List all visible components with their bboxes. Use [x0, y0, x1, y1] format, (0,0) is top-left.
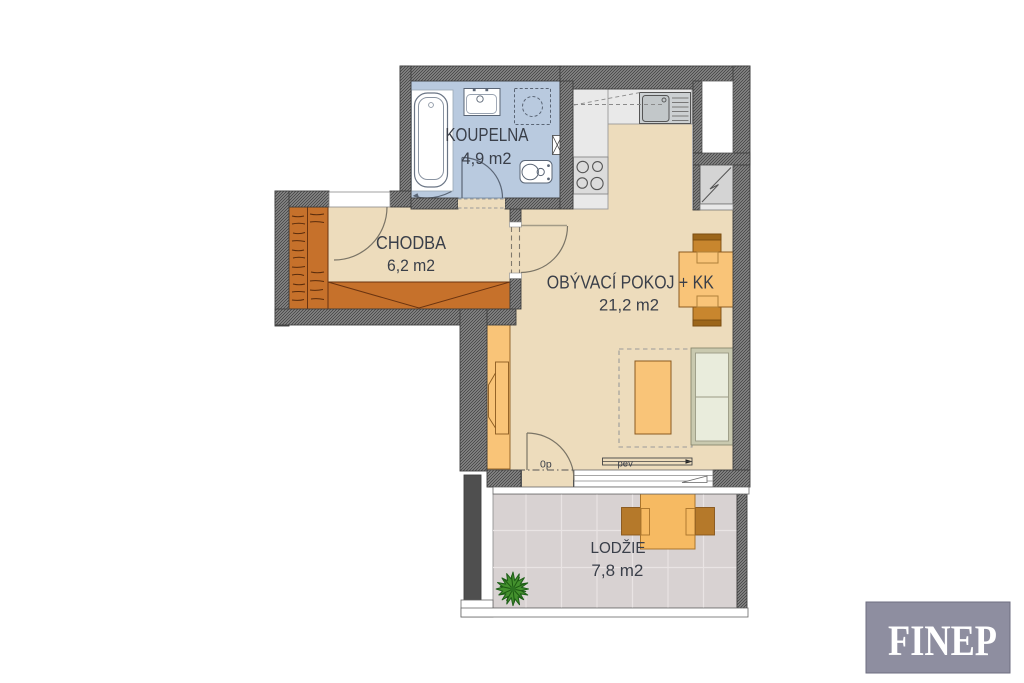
svg-text:4,9 m2: 4,9 m2	[462, 149, 512, 168]
svg-text:6,2 m2: 6,2 m2	[387, 256, 435, 275]
svg-text:7,8 m2: 7,8 m2	[591, 561, 643, 580]
svg-text:OBÝVACÍ POKOJ + KK: OBÝVACÍ POKOJ + KK	[547, 272, 714, 293]
svg-text:pev: pev	[618, 459, 634, 470]
svg-text:KOUPELNA: KOUPELNA	[445, 124, 528, 145]
svg-text:0p: 0p	[540, 459, 552, 471]
svg-text:FINEP: FINEP	[888, 618, 997, 665]
svg-text:CHODBA: CHODBA	[376, 232, 446, 253]
svg-text:21,2 m2: 21,2 m2	[599, 296, 659, 315]
svg-text:LODŽIE: LODŽIE	[591, 538, 646, 557]
